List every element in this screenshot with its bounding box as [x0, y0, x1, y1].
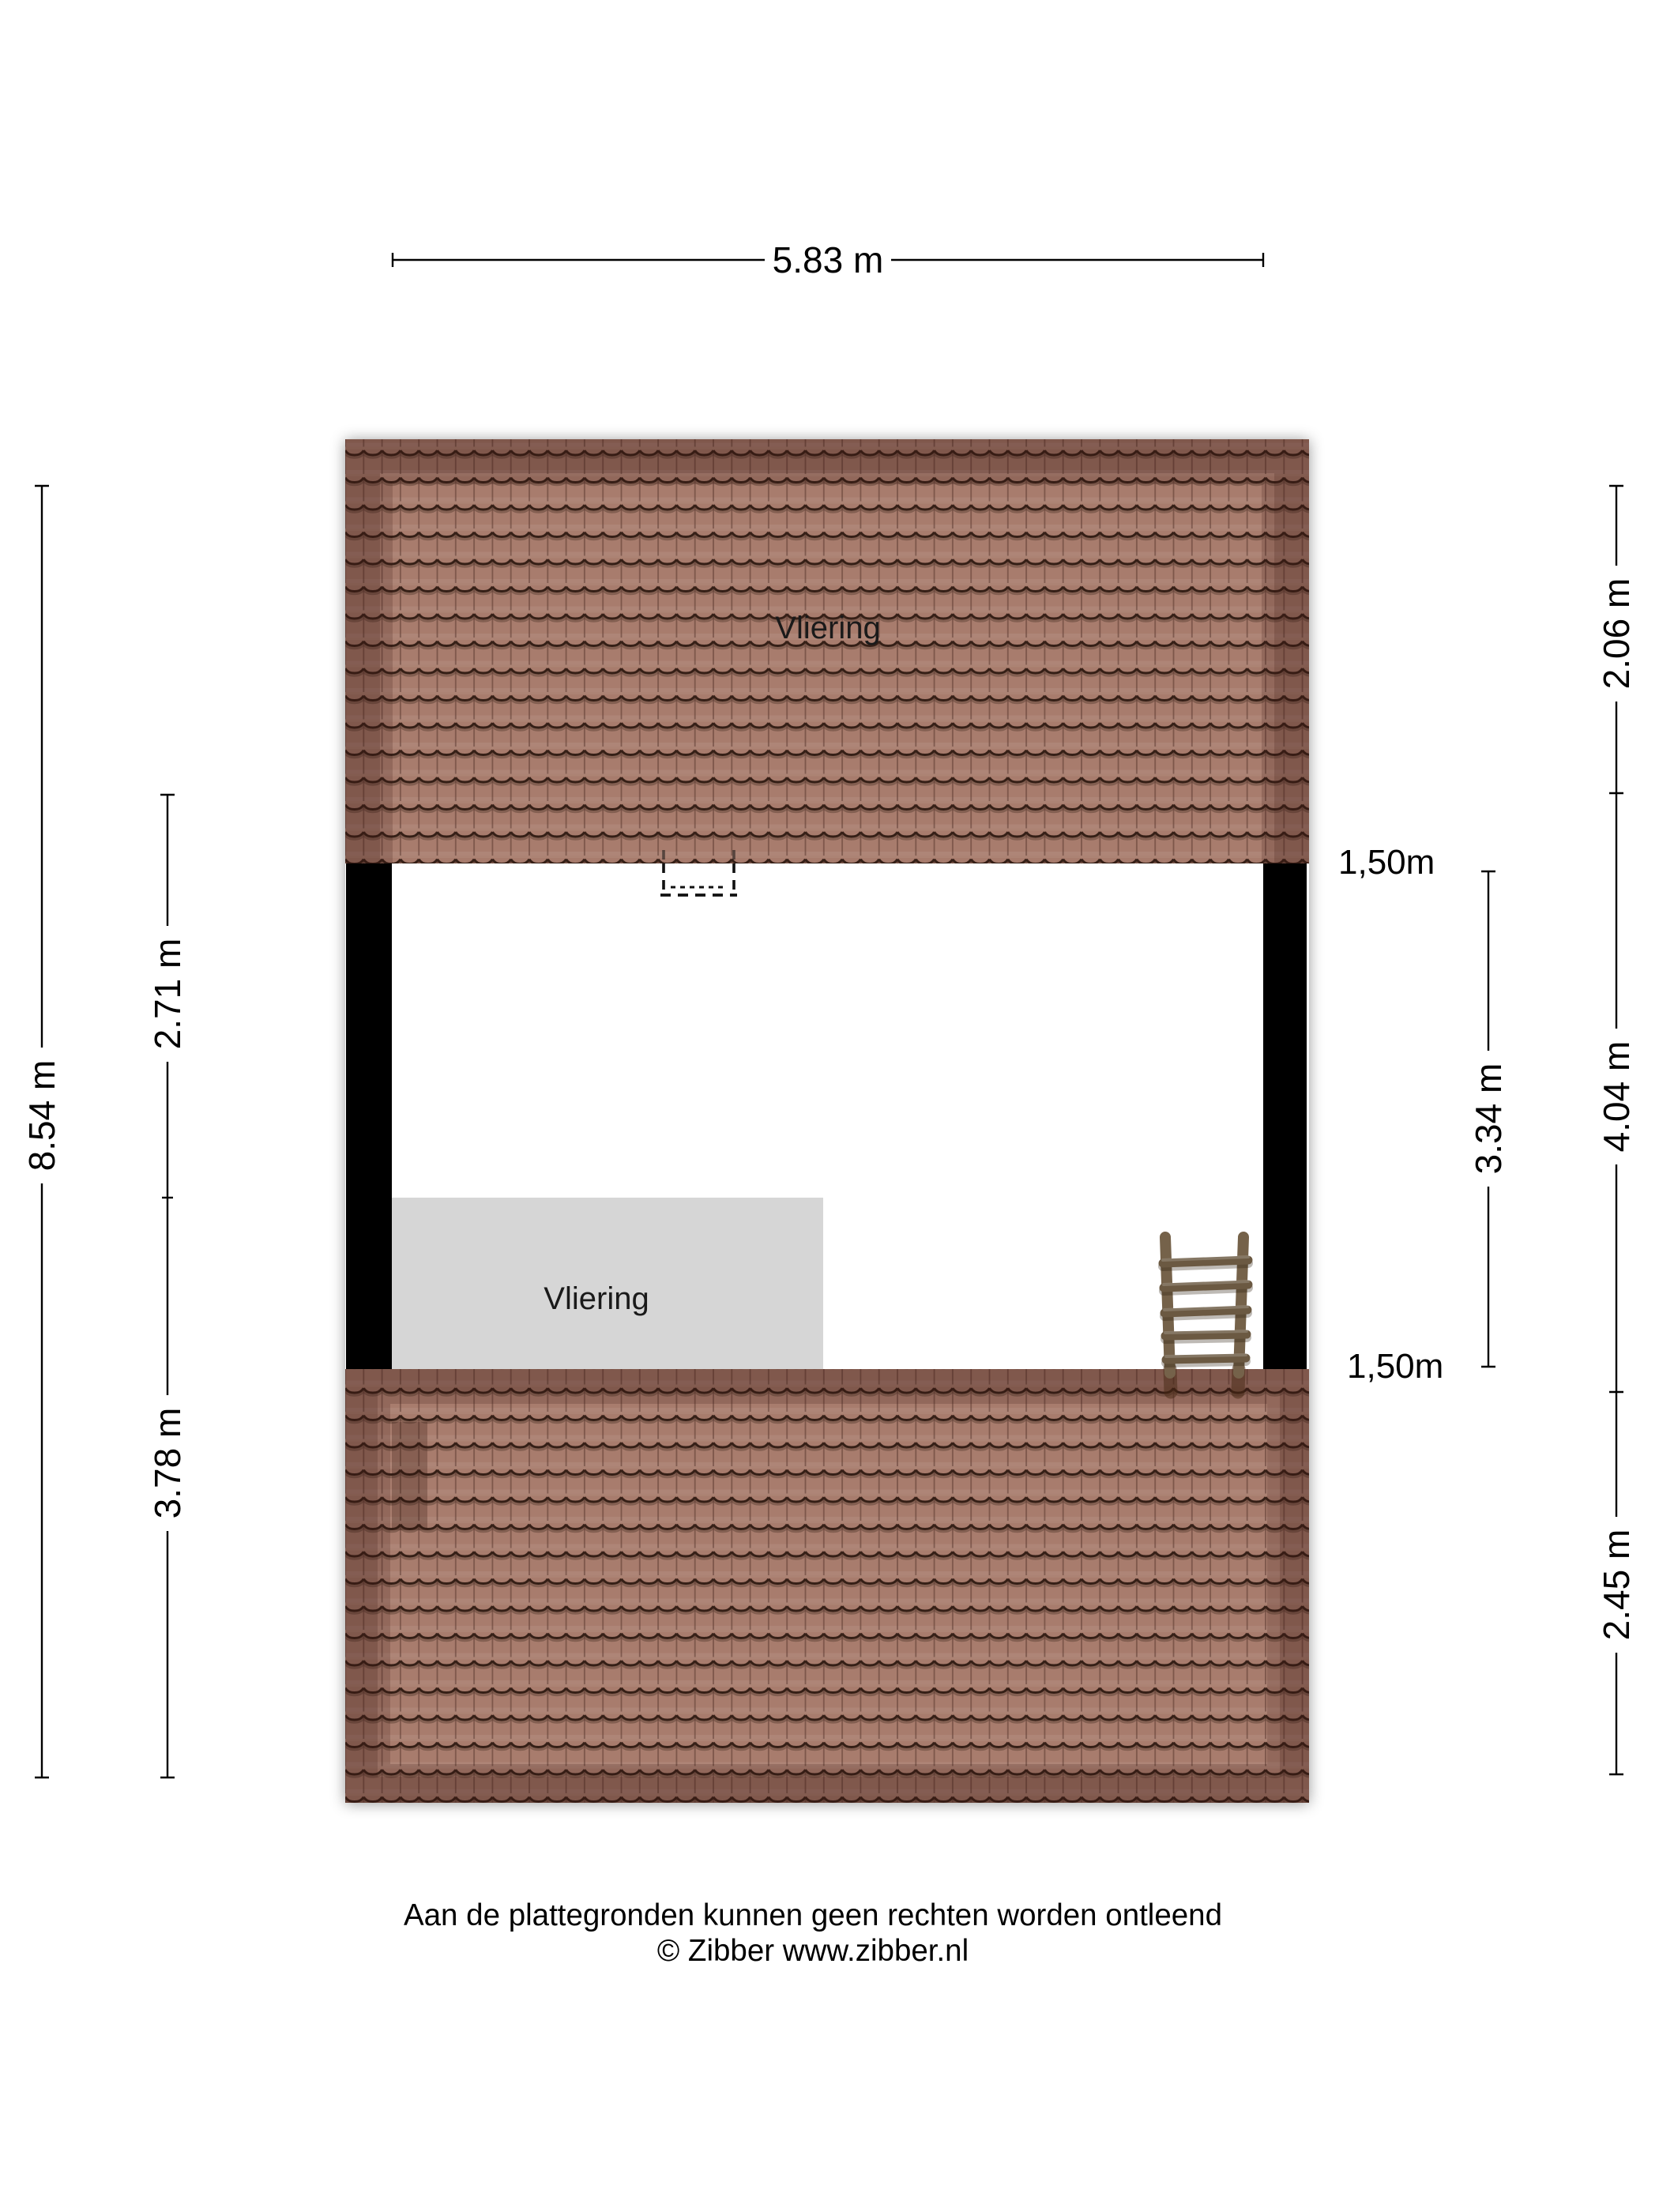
svg-text:3.78 m: 3.78 m	[147, 1408, 188, 1519]
svg-text:1,50m: 1,50m	[1338, 843, 1435, 882]
svg-text:Vliering: Vliering	[775, 611, 880, 645]
svg-text:© Zibber www.zibber.nl: © Zibber www.zibber.nl	[657, 1934, 969, 1968]
svg-text:5.83 m: 5.83 m	[773, 239, 884, 280]
svg-text:2.71 m: 2.71 m	[147, 939, 188, 1050]
svg-text:4.04 m: 4.04 m	[1596, 1041, 1637, 1153]
svg-text:2.06 m: 2.06 m	[1596, 578, 1637, 690]
svg-text:2.45 m: 2.45 m	[1596, 1529, 1637, 1641]
svg-text:Vliering: Vliering	[544, 1281, 649, 1316]
svg-text:1,50m: 1,50m	[1347, 1347, 1443, 1386]
svg-text:Aan de plattegronden kunnen ge: Aan de plattegronden kunnen geen rechten…	[404, 1898, 1222, 1932]
svg-text:8.54 m: 8.54 m	[21, 1060, 62, 1172]
svg-text:3.34 m: 3.34 m	[1468, 1063, 1509, 1175]
